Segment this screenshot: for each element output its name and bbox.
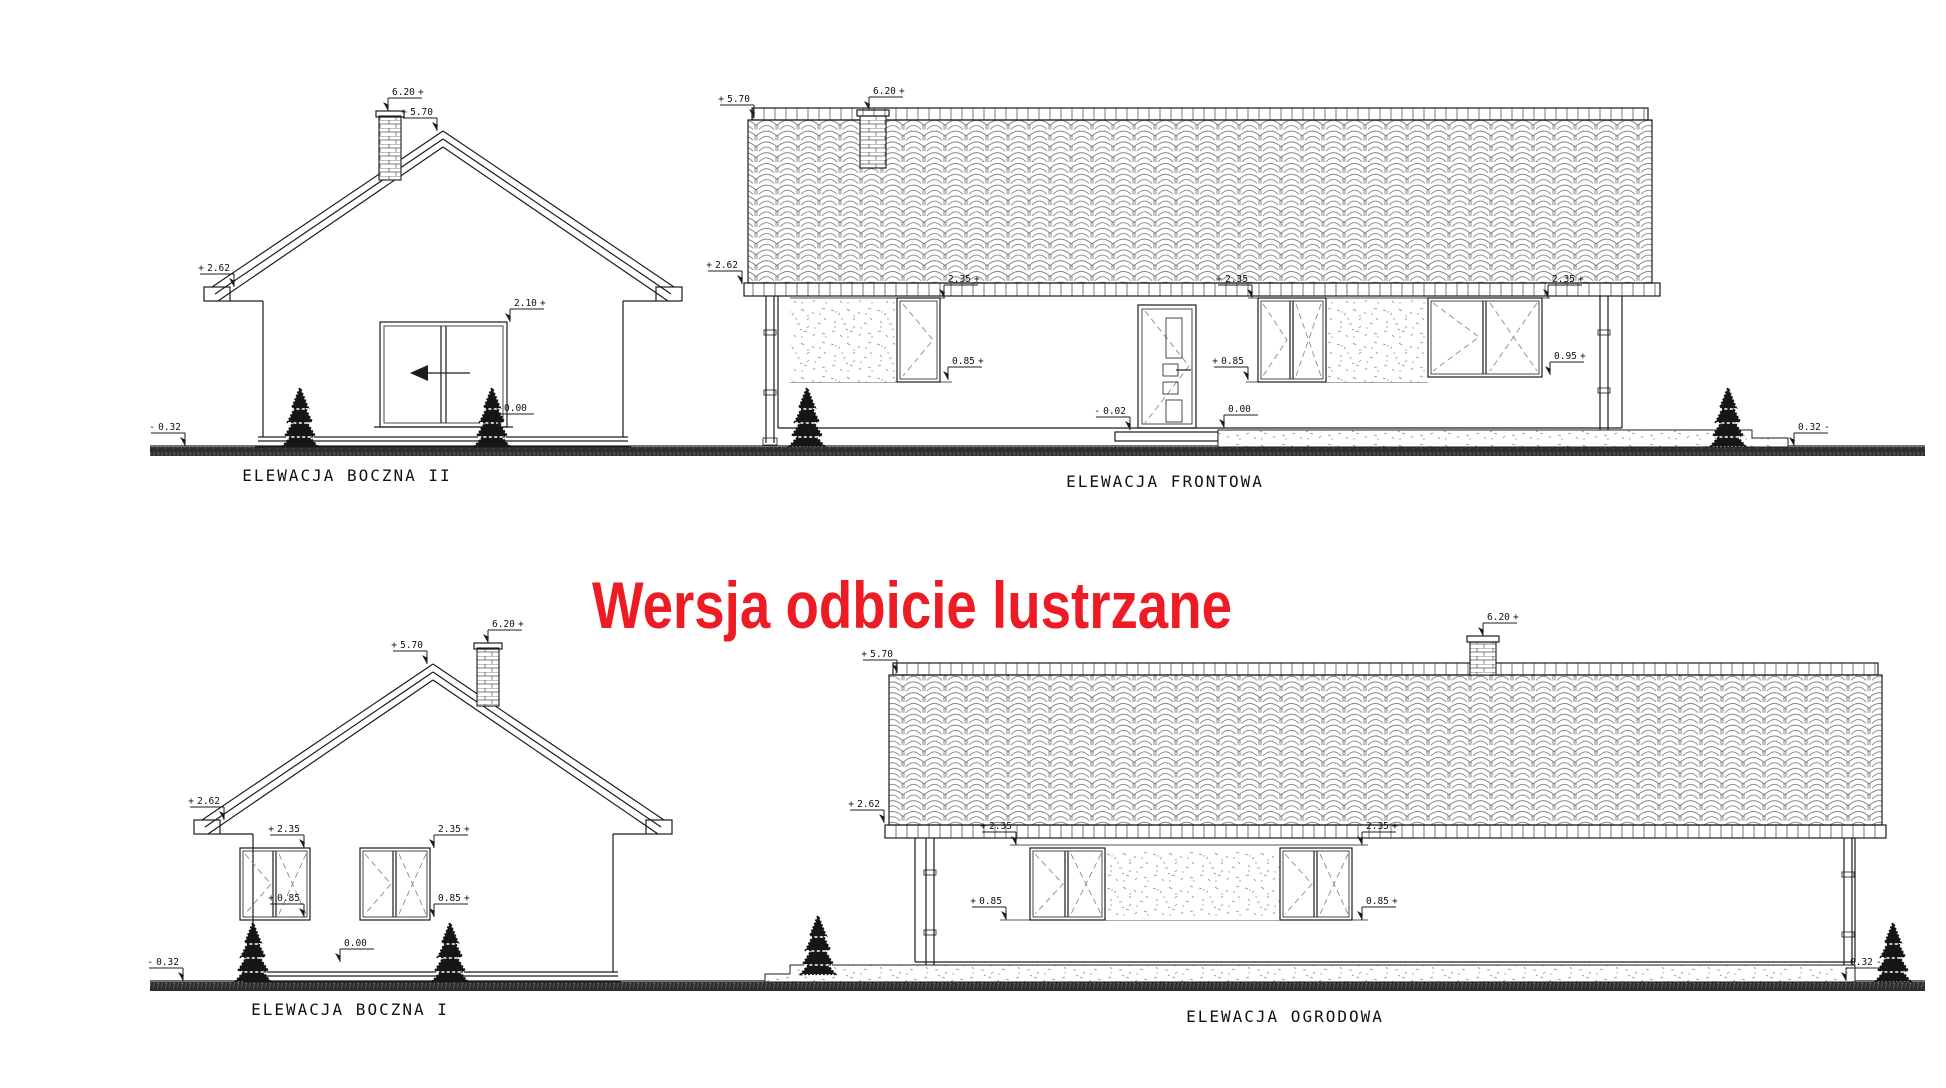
window-wide-double: [1428, 298, 1542, 377]
chimney: [857, 110, 889, 168]
level-value: 2.35: [438, 824, 461, 835]
level-sign: -: [1094, 406, 1100, 417]
caption-ogrodowa: ELEWACJA OGRODOWA: [1186, 1007, 1384, 1026]
level-sign: +: [970, 896, 976, 907]
level-marker: 0.85+: [943, 356, 984, 380]
elevation-boczna-1: 6.20+5.70+2.62+2.35+0.85+2.35+0.85+0.000…: [147, 619, 672, 1019]
level-sign: +: [980, 821, 986, 832]
window-double: [240, 848, 310, 920]
window-double: [360, 848, 430, 920]
caption-boczna-1: ELEWACJA BOCZNA I: [251, 1000, 449, 1019]
level-marker: 2.62+: [848, 799, 885, 823]
level-marker: 6.20+: [483, 619, 524, 643]
level-marker: 0.32-: [149, 422, 186, 446]
level-sign: +: [268, 824, 274, 835]
level-value: 2.35: [989, 821, 1012, 832]
level-value: 0.95: [1554, 351, 1577, 362]
architectural-elevations-drawing: 6.20+5.70+2.62+2.10+0.000.32- ELEWACJA B…: [0, 0, 1946, 1088]
level-value: 0.00: [504, 403, 527, 414]
level-sign: -: [1876, 957, 1882, 968]
level-sign: +: [848, 799, 854, 810]
level-sign: +: [978, 356, 984, 367]
level-sign: +: [188, 796, 194, 807]
level-value: 2.35: [948, 274, 971, 285]
level-marker: 0.32-: [1789, 422, 1830, 446]
level-value: 0.85: [277, 893, 300, 904]
terrace-pavement: [1218, 430, 1788, 447]
stucco-texture-band: [790, 300, 895, 382]
level-sign: +: [1216, 274, 1222, 285]
gable-roof: [194, 664, 672, 834]
level-value: 6.20: [1487, 612, 1510, 623]
level-sign: +: [1212, 356, 1218, 367]
level-value: 5.70: [870, 649, 893, 660]
terrace-pavement: [765, 965, 1855, 982]
caption-frontowa: ELEWACJA FRONTOWA: [1066, 472, 1264, 491]
level-sign: -: [1824, 422, 1830, 433]
level-sign: -: [149, 422, 155, 433]
level-value: 2.62: [857, 799, 880, 810]
level-marker: 5.70+: [401, 107, 438, 131]
level-value: 0.85: [1221, 356, 1244, 367]
window-double: [1258, 298, 1326, 382]
level-value: 5.70: [400, 640, 423, 651]
downspout-left: [923, 838, 937, 979]
level-marker: 2.62+: [706, 260, 743, 284]
level-value: 0.00: [1228, 404, 1251, 415]
level-value: 5.70: [410, 107, 433, 118]
level-sign: +: [1578, 274, 1584, 285]
level-sign: +: [540, 298, 546, 309]
level-value: 0.00: [344, 938, 367, 949]
level-marker: 6.20+: [864, 86, 905, 110]
level-value: 2.62: [715, 260, 738, 271]
level-sign: +: [1580, 351, 1586, 362]
level-sign: +: [1392, 896, 1398, 907]
elevation-boczna-2: 6.20+5.70+2.62+2.10+0.000.32- ELEWACJA B…: [149, 87, 682, 485]
level-marker: 2.10+: [505, 298, 546, 322]
level-marker: 0.32-: [147, 957, 184, 981]
level-marker: 0.85+: [268, 893, 305, 917]
level-marker: 0.00: [335, 938, 374, 962]
level-sign: +: [1513, 612, 1519, 623]
level-marker: 5.70+: [391, 640, 428, 664]
level-sign: +: [401, 107, 407, 118]
mirror-version-title: Wersja odbicie lustrzane: [592, 568, 1232, 642]
level-value: 6.20: [873, 86, 896, 97]
level-value: 6.20: [392, 87, 415, 98]
main-roof: [885, 663, 1886, 838]
level-value: 0.85: [952, 356, 975, 367]
window-double: [1030, 848, 1105, 920]
door-step: [1115, 432, 1218, 441]
elevation-ogrodowa: 6.20+5.70+2.62+2.35+0.85+2.35+0.85+0.32-…: [765, 612, 1910, 1026]
elevation-frontowa: 6.20+5.70+2.62+2.35+0.85+2.35+0.85+2.35+…: [706, 86, 1829, 491]
level-marker: 0.85+: [970, 896, 1007, 920]
spruce-tree: [1876, 923, 1910, 981]
level-marker: 2.35+: [268, 824, 305, 848]
stucco-texture-band: [1326, 300, 1428, 382]
level-value: 2.35: [1552, 274, 1575, 285]
front-wall: [778, 296, 1622, 428]
level-value: 0.32: [158, 422, 181, 433]
level-value: 0.02: [1103, 406, 1126, 417]
level-labels: 6.20+5.70+2.62+2.35+0.85+2.35+0.85+0.000…: [147, 619, 524, 981]
level-sign: +: [861, 649, 867, 660]
chimney: [376, 111, 404, 180]
level-sign: +: [706, 260, 712, 271]
level-marker: 5.70+: [861, 649, 898, 673]
level-sign: -: [147, 957, 153, 968]
level-sign: +: [391, 640, 397, 651]
downspout-left: [763, 296, 777, 445]
level-value: 0.32: [156, 957, 179, 968]
level-marker: 5.70+: [718, 94, 755, 118]
level-labels: 6.20+5.70+2.62+2.10+0.000.32-: [149, 87, 546, 446]
spruce-tree: [790, 388, 824, 446]
chimney: [474, 643, 502, 706]
level-marker: 0.95+: [1545, 351, 1586, 375]
level-value: 0.85: [979, 896, 1002, 907]
level-value: 0.85: [1366, 896, 1389, 907]
level-value: 0.85: [438, 893, 461, 904]
gable-wall: [245, 834, 621, 982]
level-value: 2.10: [514, 298, 537, 309]
level-value: 2.35: [1225, 274, 1248, 285]
level-sign: +: [718, 94, 724, 105]
level-sign: +: [198, 263, 204, 274]
slide-direction-arrow-icon: [410, 365, 470, 381]
level-value: 2.35: [277, 824, 300, 835]
window-double: [1280, 848, 1352, 920]
level-sign: +: [418, 87, 424, 98]
level-marker: 0.85+: [1212, 356, 1249, 380]
gable-roof: [204, 131, 682, 301]
level-sign: +: [464, 824, 470, 835]
level-sign: +: [268, 893, 274, 904]
level-marker: 6.20+: [1478, 612, 1519, 636]
drawing-sheet: 6.20+5.70+2.62+2.10+0.000.32- ELEWACJA B…: [0, 0, 1946, 1088]
level-marker: 0.02-: [1094, 406, 1131, 430]
stucco-texture-band: [1105, 848, 1280, 920]
level-marker: 0.85+: [429, 893, 470, 917]
downspout-right: [1597, 296, 1611, 443]
chimney: [1467, 636, 1499, 675]
level-marker: 2.35+: [429, 824, 470, 848]
level-marker: 0.85+: [1357, 896, 1398, 920]
level-value: 2.62: [197, 796, 220, 807]
window-narrow: [897, 298, 940, 382]
gable-wall: [255, 301, 631, 447]
level-value: 0.32: [1850, 957, 1873, 968]
level-value: 2.35: [1366, 821, 1389, 832]
caption-boczna-2: ELEWACJA BOCZNA II: [242, 466, 451, 485]
level-value: 6.20: [492, 619, 515, 630]
level-value: 2.62: [207, 263, 230, 274]
level-sign: +: [1392, 821, 1398, 832]
level-sign: +: [464, 893, 470, 904]
level-value: 0.32: [1798, 422, 1821, 433]
level-value: 5.70: [727, 94, 750, 105]
level-sign: +: [974, 274, 980, 285]
level-marker: 0.00: [1219, 404, 1258, 428]
level-sign: +: [899, 86, 905, 97]
level-sign: +: [518, 619, 524, 630]
